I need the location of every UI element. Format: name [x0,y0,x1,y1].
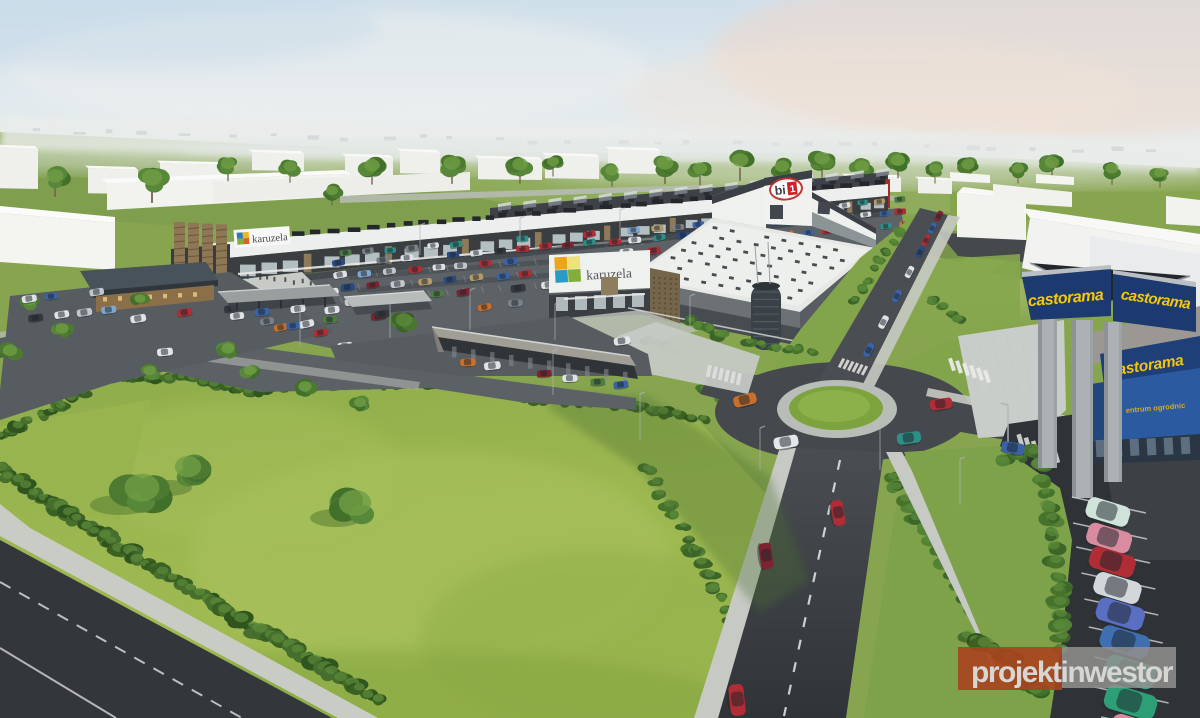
svg-text:projektinwestor: projektinwestor [971,656,1174,689]
svg-text:bi: bi [774,183,787,198]
